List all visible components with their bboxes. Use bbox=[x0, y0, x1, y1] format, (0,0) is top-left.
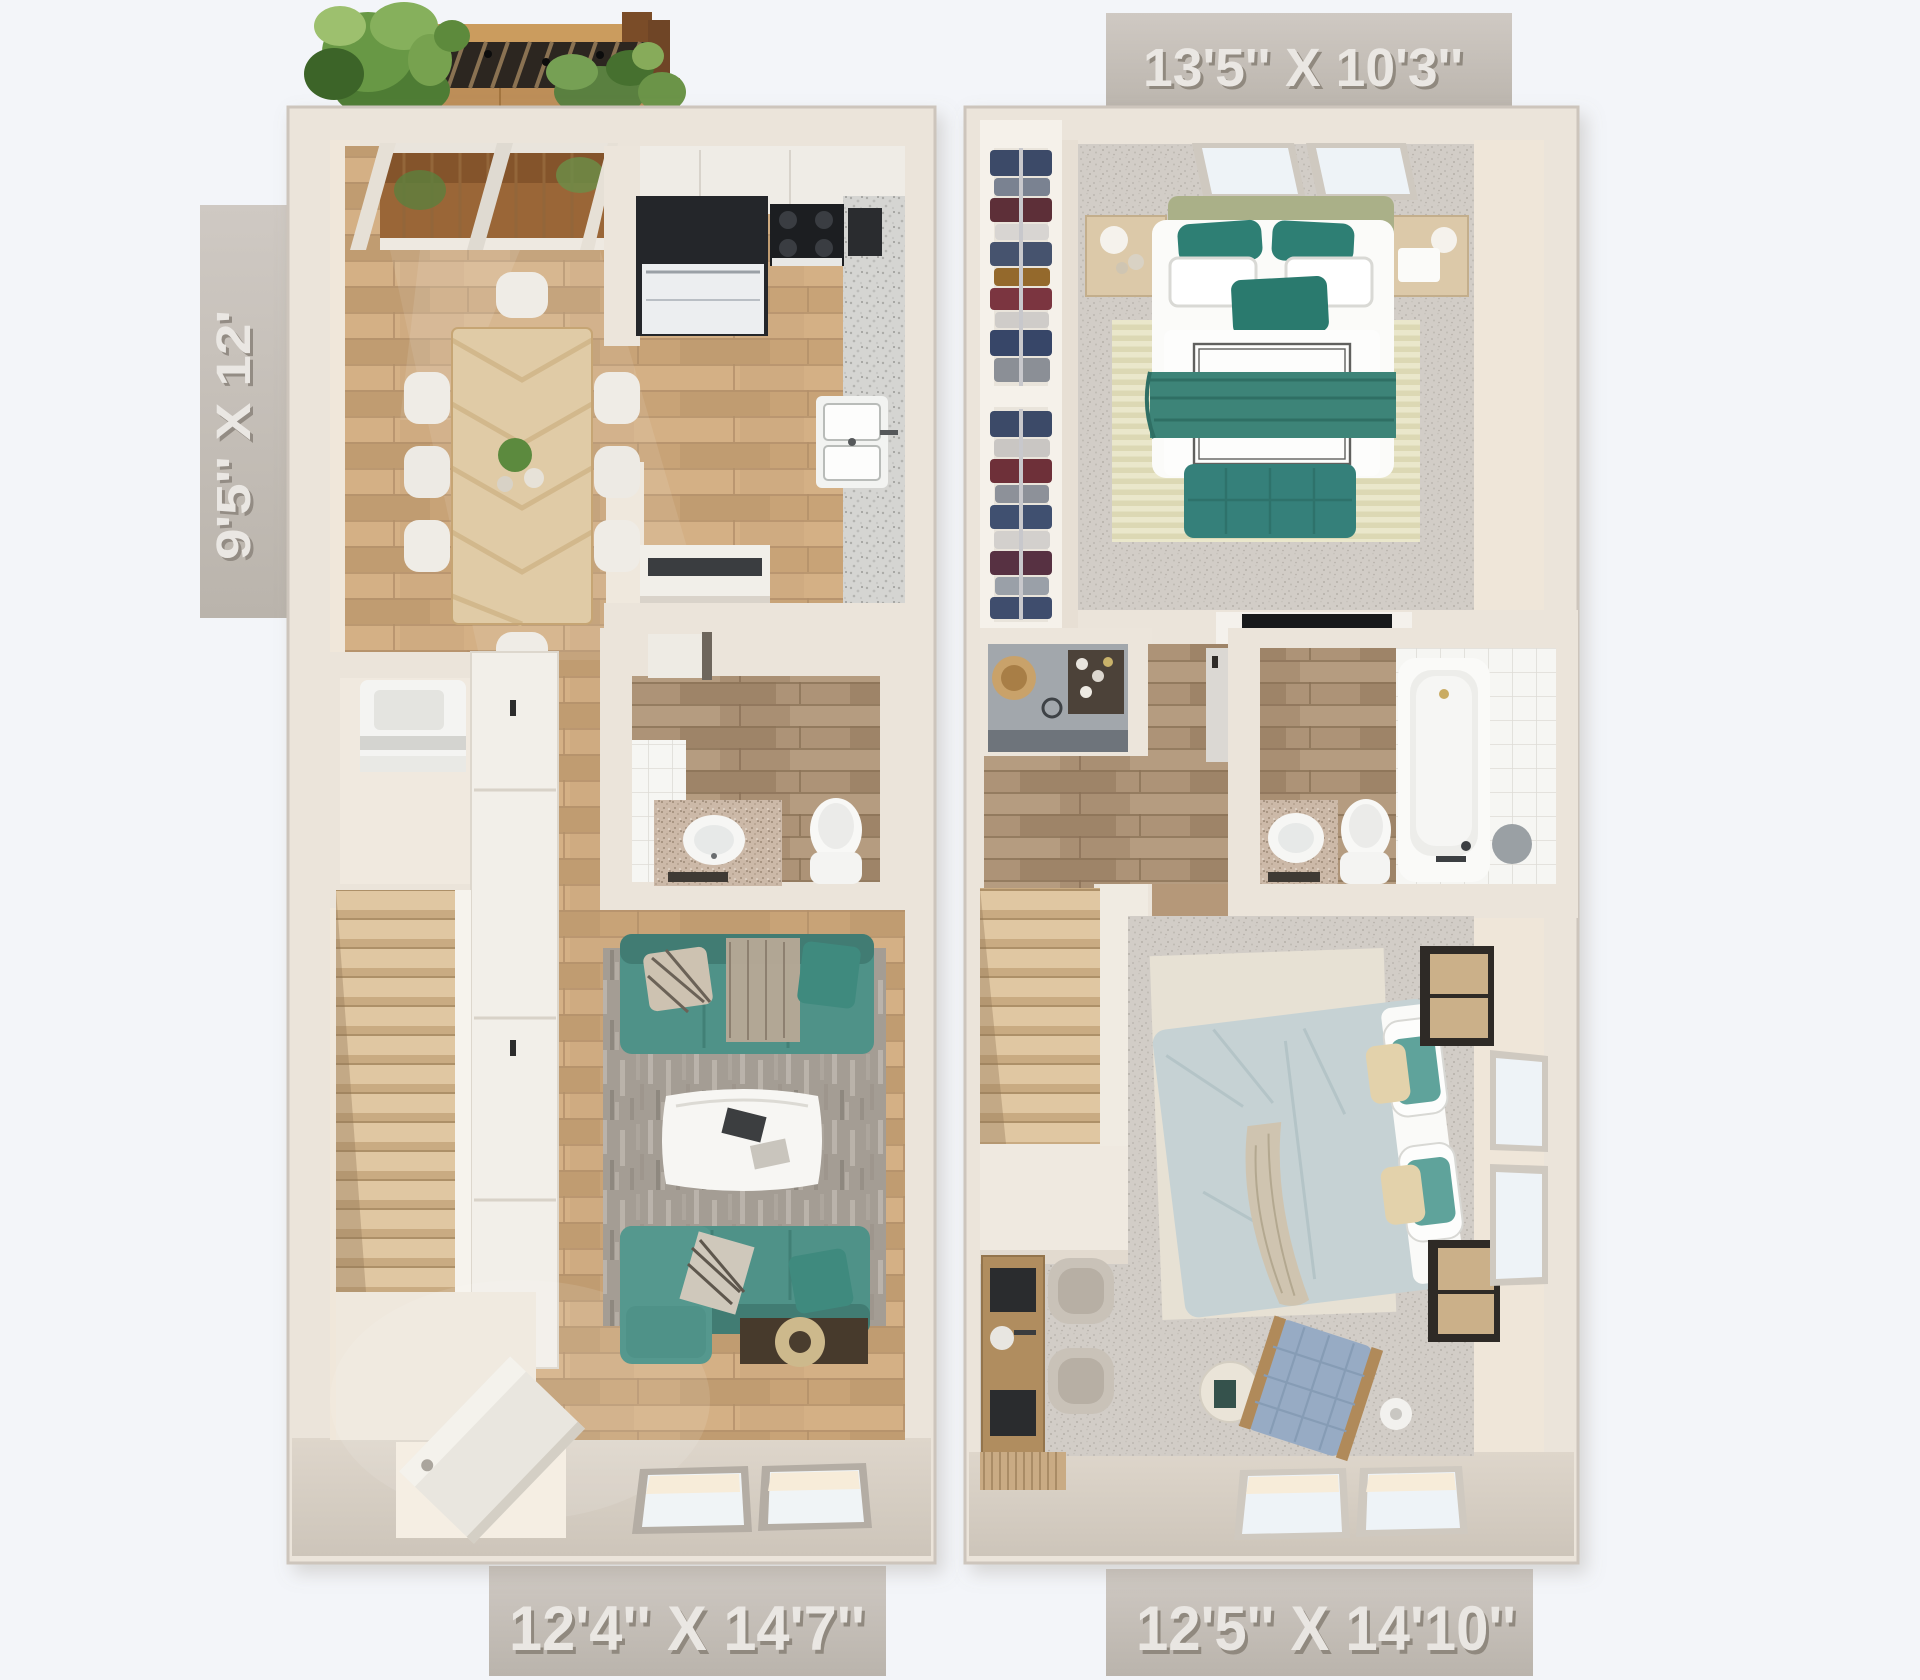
svg-text:9'5'' X 12': 9'5'' X 12' bbox=[208, 310, 261, 560]
svg-text:12'5'' X 14'10'': 12'5'' X 14'10'' bbox=[1136, 1594, 1516, 1664]
svg-text:12'4'' X 14'7'': 12'4'' X 14'7'' bbox=[509, 1594, 865, 1664]
svg-text:13'5'' X 10'3'': 13'5'' X 10'3'' bbox=[1143, 38, 1463, 98]
